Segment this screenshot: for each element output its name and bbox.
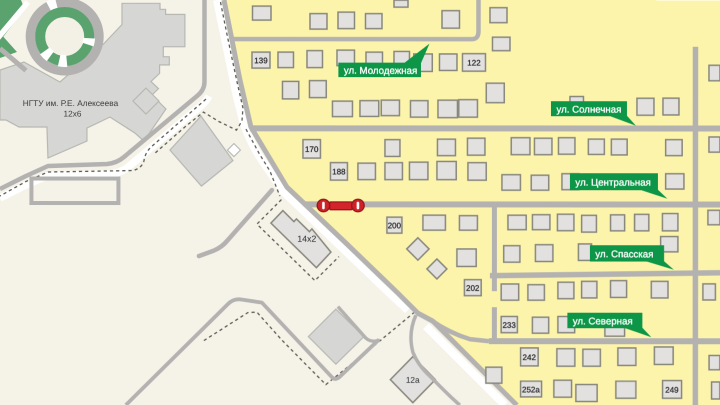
svg-text:ул. Солнечная: ул. Солнечная: [556, 105, 621, 116]
svg-text:249: 249: [665, 386, 679, 395]
svg-text:ул. Молодежная: ул. Молодежная: [344, 66, 417, 77]
svg-text:ул. Спасская: ул. Спасская: [595, 249, 653, 260]
svg-text:ул. Северная: ул. Северная: [573, 316, 633, 327]
svg-text:12х6: 12х6: [63, 109, 81, 119]
svg-text:122: 122: [467, 59, 481, 68]
svg-text:188: 188: [332, 167, 346, 176]
svg-text:14х2: 14х2: [297, 234, 316, 244]
svg-text:252а: 252а: [522, 385, 540, 394]
svg-text:139: 139: [254, 56, 268, 65]
svg-text:ул. Центральная: ул. Центральная: [575, 178, 650, 189]
svg-text:202: 202: [466, 284, 480, 293]
svg-text:233: 233: [502, 321, 516, 330]
svg-text:12а: 12а: [406, 375, 420, 385]
svg-text:242: 242: [523, 353, 537, 362]
svg-text:200: 200: [388, 221, 402, 230]
svg-text:НГТУ им. Р.Е. Алексеева: НГТУ им. Р.Е. Алексеева: [23, 98, 119, 108]
svg-text:170: 170: [305, 145, 319, 154]
